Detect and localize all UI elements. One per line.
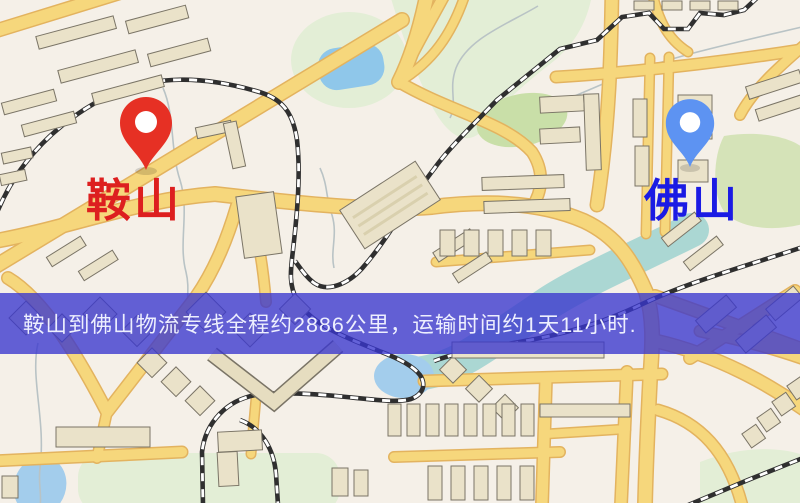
origin-label: 鞍山 (86, 175, 182, 226)
route-map-image: 鞍山 佛山 鞍山到佛山物流专线全程约2886公里，运输时间约1天11小时. (0, 0, 800, 503)
map-canvas: 鞍山 佛山 (0, 0, 800, 503)
destination-pin[interactable] (666, 99, 714, 167)
destination-label: 佛山 (643, 175, 740, 226)
route-info-text: 鞍山到佛山物流专线全程约2886公里，运输时间约1天11小时. (0, 308, 637, 339)
destination-pin-body (666, 99, 714, 167)
destination-pin-hole (680, 112, 700, 132)
route-info-banner: 鞍山到佛山物流专线全程约2886公里，运输时间约1天11小时. (0, 293, 800, 354)
origin-pin-hole (135, 111, 157, 133)
